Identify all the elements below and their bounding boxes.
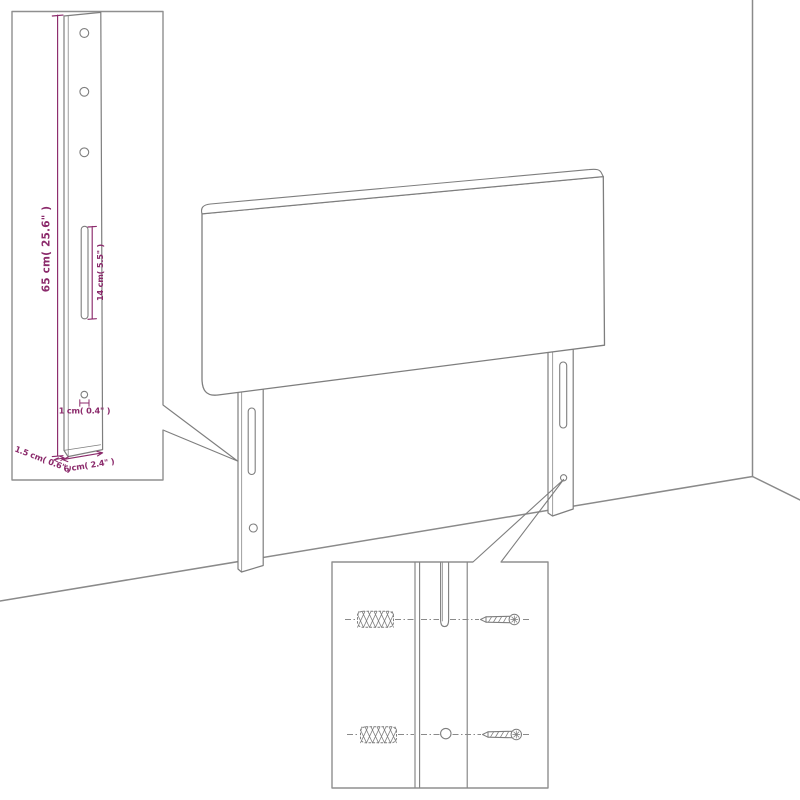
diagram-canvas: 65 cm( 25.6" ) 14 cm( 5.5" ) 1 cm( 0.4" … bbox=[0, 0, 800, 800]
headboard-panel bbox=[202, 169, 605, 395]
leader-line-post-inset bbox=[163, 405, 238, 461]
callout-leaders bbox=[163, 405, 564, 562]
screw-icon bbox=[481, 614, 520, 624]
fastener-centerlines bbox=[345, 620, 531, 735]
mounting-leg-closeup bbox=[415, 563, 467, 788]
post-drawing bbox=[64, 12, 103, 456]
dimension-label-slot: 14 cm( 5.5" ) bbox=[95, 244, 105, 301]
detail-inset-post: 65 cm( 25.6" ) 14 cm( 5.5" ) 1 cm( 0.4" … bbox=[12, 12, 163, 481]
wall-plug-icon bbox=[361, 727, 397, 743]
headboard-mounting-diagram: 65 cm( 25.6" ) 14 cm( 5.5" ) 1 cm( 0.4" … bbox=[0, 0, 800, 800]
closeup-hole bbox=[441, 728, 451, 738]
closeup-slot bbox=[441, 563, 449, 627]
dimension-label-hole: 1 cm( 0.4" ) bbox=[59, 406, 111, 416]
left-mounting-leg bbox=[238, 389, 263, 573]
detail-inset-mounting bbox=[332, 562, 548, 788]
floor-line-right bbox=[753, 477, 800, 501]
dimension-65cm: 65 cm( 25.6" ) bbox=[41, 15, 64, 457]
floor-line-left bbox=[0, 477, 753, 602]
screw-icon bbox=[483, 729, 522, 739]
wall-plug-icon bbox=[358, 611, 394, 627]
inset-border bbox=[332, 562, 548, 788]
dimension-label-height: 65 cm( 25.6" ) bbox=[41, 206, 53, 293]
